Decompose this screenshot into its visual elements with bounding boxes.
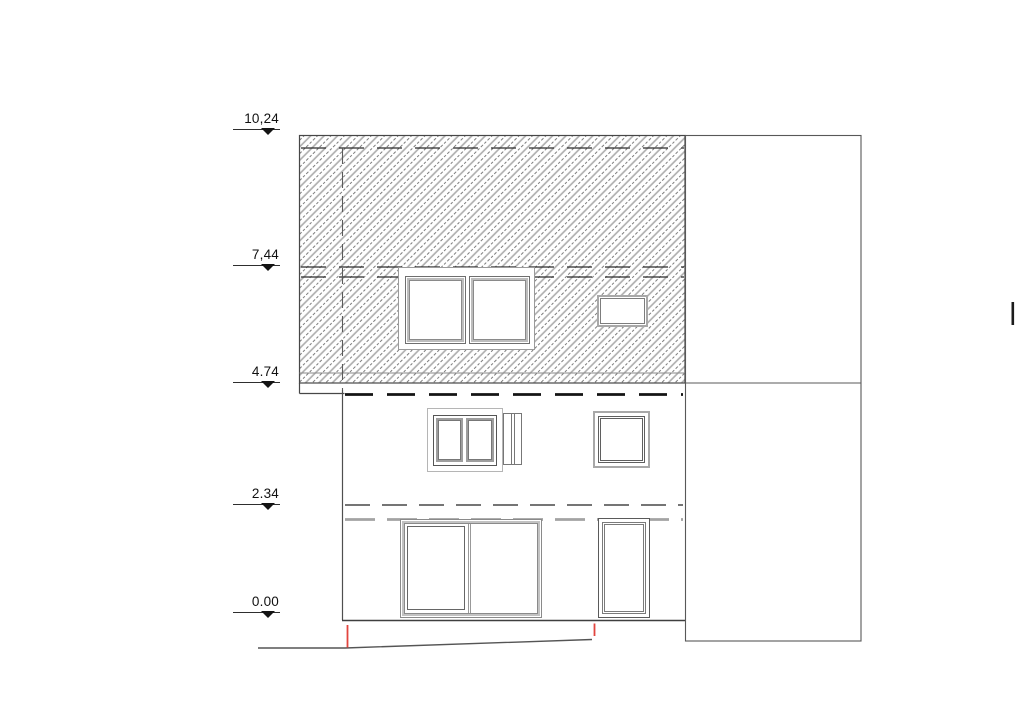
door-leaf bbox=[604, 524, 644, 612]
attic-small-window bbox=[597, 295, 648, 327]
level-marker-triangle-icon bbox=[261, 611, 275, 618]
door-frame bbox=[602, 522, 646, 614]
ground-window-mullion bbox=[468, 524, 471, 613]
ground-line bbox=[258, 640, 592, 649]
elevation-drawing: 10,24 7,44 4.74 2.34 0.00 bbox=[0, 0, 1019, 720]
attic-small-window-pane bbox=[600, 298, 645, 324]
level-label: 2.34 bbox=[252, 486, 279, 501]
level-label: 7,44 bbox=[252, 247, 279, 262]
upper-floor-window-shutter bbox=[503, 413, 522, 465]
level-label: 0.00 bbox=[252, 594, 279, 609]
level-marker-triangle-icon bbox=[261, 128, 275, 135]
upper-right-window-frame bbox=[598, 416, 645, 463]
ground-window-inner-frame bbox=[404, 523, 538, 614]
attic-window-sash-left bbox=[405, 276, 466, 344]
level-marker-triangle-icon bbox=[261, 264, 275, 271]
neighbor-building-outline bbox=[686, 136, 862, 642]
upper-window-pane-left-glass bbox=[438, 420, 461, 460]
attic-window-sash-right-pane bbox=[473, 280, 526, 340]
ground-floor-window bbox=[400, 519, 542, 618]
level-label: 4.74 bbox=[252, 364, 279, 379]
upper-window-pane-left bbox=[436, 418, 463, 462]
ground-window-sash-left bbox=[407, 526, 465, 610]
ground-window-outer-frame bbox=[402, 521, 540, 616]
level-marker-triangle-icon bbox=[261, 503, 275, 510]
upper-window-pane-right-glass bbox=[468, 420, 492, 460]
attic-window-sash-right bbox=[469, 276, 530, 344]
upper-window-frame bbox=[433, 415, 497, 466]
attic-dormer-window bbox=[398, 267, 535, 350]
attic-window-sash-right-frame bbox=[471, 278, 528, 342]
upper-floor-window-right bbox=[593, 411, 650, 468]
level-marker-triangle-icon bbox=[261, 381, 275, 388]
upper-floor-window-left bbox=[427, 408, 503, 472]
upper-window-pane-right bbox=[466, 418, 494, 462]
attic-window-sash-left-pane bbox=[409, 280, 462, 340]
attic-window-sash-left-frame bbox=[407, 278, 464, 342]
shutter-double-line bbox=[511, 414, 515, 464]
right-edge-mark bbox=[1012, 302, 1015, 325]
entrance-door bbox=[598, 518, 650, 618]
level-label: 10,24 bbox=[244, 111, 279, 126]
upper-right-window-pane bbox=[600, 418, 643, 461]
